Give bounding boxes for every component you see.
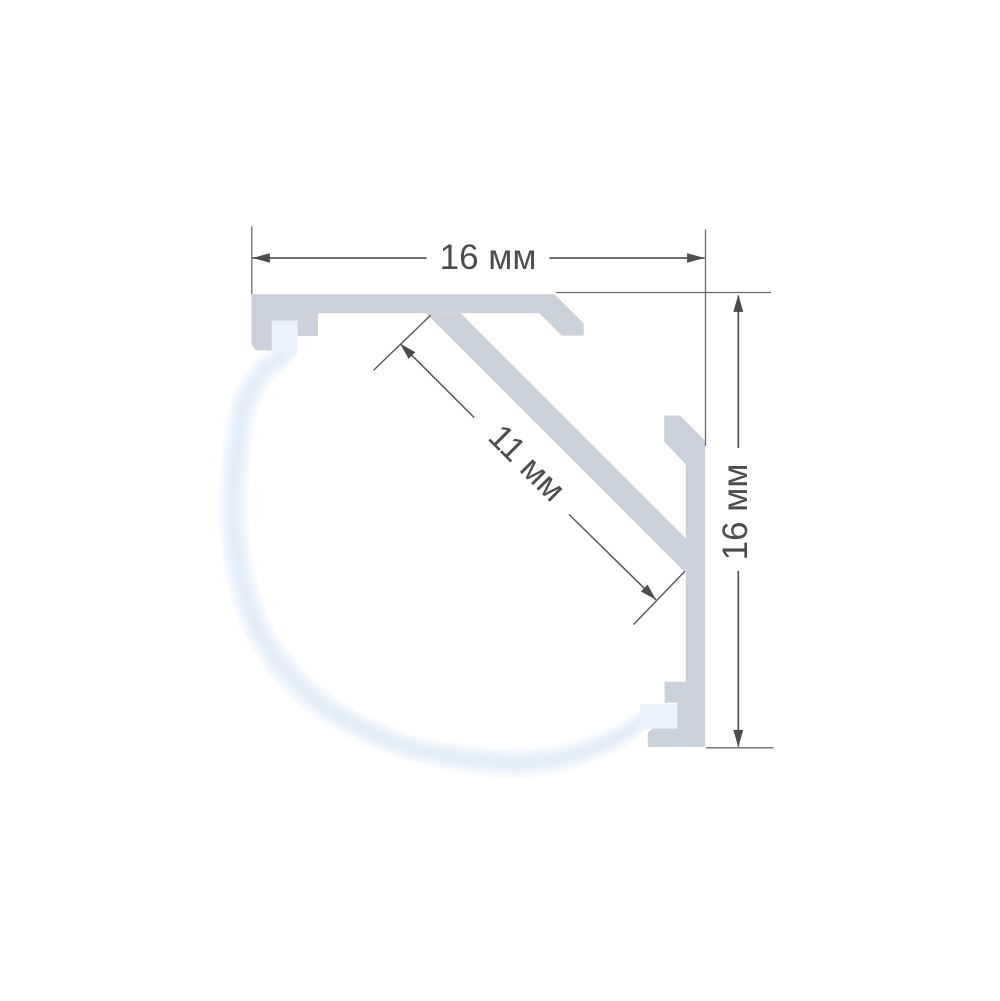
svg-text:16 мм: 16 мм <box>440 238 537 277</box>
svg-text:16 мм: 16 мм <box>716 464 755 561</box>
